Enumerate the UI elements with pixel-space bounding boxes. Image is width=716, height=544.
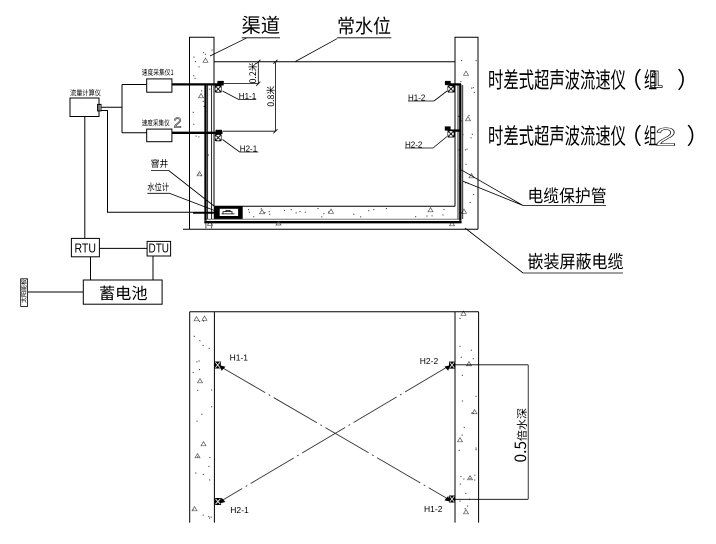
svg-text:（: （ xyxy=(620,63,643,95)
svg-text:H2-1: H2-1 xyxy=(230,505,249,515)
svg-text:DTU: DTU xyxy=(149,242,170,256)
svg-text:H2-2: H2-2 xyxy=(405,140,423,149)
svg-text:2: 2 xyxy=(174,116,182,132)
svg-text:RTU: RTU xyxy=(75,242,97,256)
svg-text:时差式超声波流速仪: 时差式超声波流速仪 xyxy=(488,119,626,151)
svg-text:（: （ xyxy=(620,119,643,151)
svg-text:）: ） xyxy=(677,63,700,95)
svg-text:渠道: 渠道 xyxy=(242,10,281,39)
svg-text:常水位: 常水位 xyxy=(337,10,391,39)
svg-text:H1-1: H1-1 xyxy=(239,92,257,101)
svg-text:）: ） xyxy=(687,119,710,151)
svg-text:0.8米: 0.8米 xyxy=(264,86,277,107)
svg-text:窨井: 窨井 xyxy=(151,156,169,170)
svg-text:电缆保护管: 电缆保护管 xyxy=(528,183,607,208)
svg-text:速度采集仪: 速度采集仪 xyxy=(142,117,170,128)
svg-text:嵌装屏蔽电缆: 嵌装屏蔽电缆 xyxy=(528,248,624,274)
svg-text:H1-2: H1-2 xyxy=(424,504,443,514)
svg-text:速度采集仪1: 速度采集仪1 xyxy=(142,67,174,78)
svg-text:蓄电池: 蓄电池 xyxy=(99,280,148,304)
svg-text:0.2米: 0.2米 xyxy=(246,63,259,84)
svg-text:太阳能板: 太阳能板 xyxy=(19,279,28,303)
svg-text:H2-1: H2-1 xyxy=(240,144,258,153)
svg-text:时差式超声波流速仪: 时差式超声波流速仪 xyxy=(488,63,626,95)
svg-text:H1-1: H1-1 xyxy=(230,352,249,362)
svg-text:水位计: 水位计 xyxy=(147,179,169,193)
svg-text:H2-2: H2-2 xyxy=(420,356,439,366)
svg-text:H1-2: H1-2 xyxy=(408,93,426,102)
svg-text:1: 1 xyxy=(650,67,663,94)
svg-text:2: 2 xyxy=(655,122,677,150)
svg-text:流量计算仪: 流量计算仪 xyxy=(70,87,101,98)
